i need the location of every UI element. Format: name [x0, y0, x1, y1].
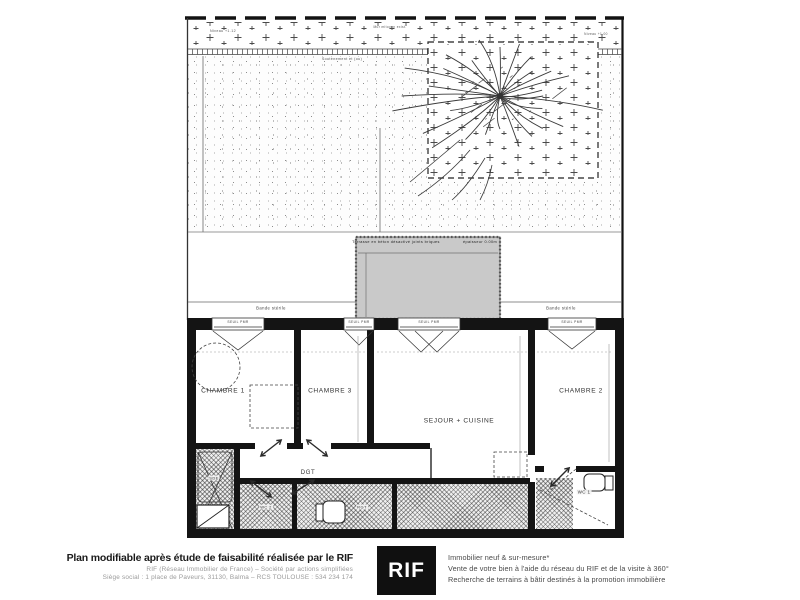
- hall-floor-tiles: [397, 484, 528, 529]
- garden-gravel-texture: [188, 56, 623, 232]
- footer-service-3: Recherche de terrains à bâtir destinés à…: [448, 575, 669, 586]
- room-label-rgt: RGT: [356, 505, 368, 510]
- wc1-floor-tiles: [536, 478, 573, 529]
- page: { "plan": { "annotations": { "niveau_lef…: [0, 0, 800, 600]
- seuil-pmr-label-3: SEUIL PMR: [418, 320, 439, 324]
- dimension-lines: [198, 336, 613, 476]
- retaining-wall: [188, 49, 622, 55]
- footer-left-block: Plan modifiable après étude de faisabili…: [55, 552, 353, 581]
- room-label-wc2: WC 2: [259, 505, 273, 510]
- mur-mitoyen-label: Mur mitoyen exist.: [373, 25, 406, 29]
- room-label-dgt: DGT: [301, 470, 315, 476]
- rgt-floor-tiles: [297, 484, 392, 529]
- room-label-chambre1: CHAMBRE 1: [201, 388, 245, 395]
- terrasse-note-label: épaisseur 0.00m: [463, 240, 497, 244]
- seuil-pmr-label-4: SEUIL PMR: [561, 320, 582, 324]
- footer-right-block: Immobilier neuf & sur-mesure* Vente de v…: [448, 553, 669, 586]
- footer-address-line: Siège social : 1 place de Paveurs, 31130…: [55, 574, 353, 581]
- room-label-chambre3: CHAMBRE 3: [308, 388, 352, 395]
- seuil-pmr-label-1: SEUIL PMR: [227, 320, 248, 324]
- bande-sterile-right-label: Bande stérile: [546, 306, 576, 311]
- room-label-wc1: WC 1: [577, 490, 592, 495]
- niveau-right-label: Niveau +1.00: [584, 32, 608, 36]
- rif-logo: RIF: [377, 546, 436, 595]
- terrasse-label: Terrasse en béton désactivé joints briqu…: [352, 240, 440, 244]
- window-swing-symbols: [213, 331, 595, 352]
- terrace: [356, 237, 500, 319]
- sde-floor-tiles: [196, 448, 236, 529]
- footer-title: Plan modifiable après étude de faisabili…: [55, 552, 353, 564]
- terrace-paving-edge: [356, 237, 500, 319]
- room-label-sde: SDE: [208, 476, 219, 481]
- room-label-sejour: SEJOUR + CUISINE: [424, 418, 495, 425]
- bande-sterile-left-label: Bande stérile: [256, 306, 286, 311]
- footer-service-1: Immobilier neuf & sur-mesure*: [448, 553, 669, 564]
- niveau-left-label: Niveau +1.12: [210, 29, 236, 33]
- footer-service-2: Vente de votre bien à l'aide du réseau d…: [448, 564, 669, 575]
- soutenement-label: Soutènement et (ou): [322, 57, 362, 61]
- windows: [212, 318, 596, 330]
- toilet-wc1-icon: [584, 474, 613, 491]
- room-label-chambre2: CHAMBRE 2: [559, 388, 603, 395]
- footer-company-line: RIF (Réseau Immobilier de France) – Soci…: [55, 566, 353, 573]
- seuil-pmr-label-2: SEUIL PMR: [348, 320, 369, 324]
